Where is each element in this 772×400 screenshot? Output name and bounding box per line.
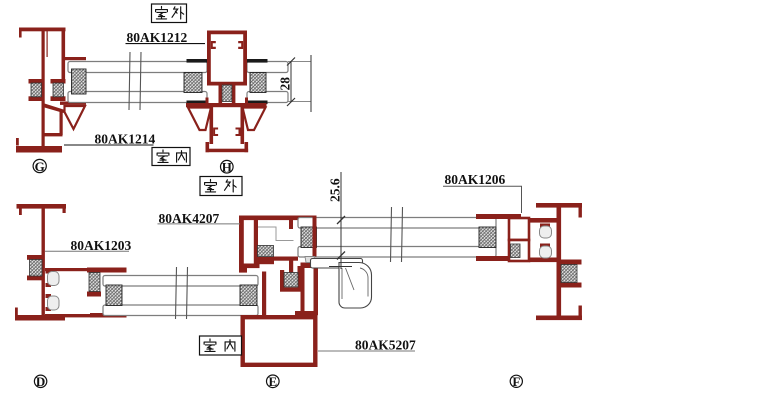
svg-text:80AK1214: 80AK1214 bbox=[95, 132, 156, 147]
svg-text:28: 28 bbox=[278, 77, 293, 91]
svg-text:D: D bbox=[36, 374, 45, 389]
svg-text:80AK1212: 80AK1212 bbox=[127, 30, 188, 45]
svg-text:E: E bbox=[268, 374, 277, 389]
svg-text:H: H bbox=[222, 160, 232, 175]
svg-text:F: F bbox=[512, 374, 520, 389]
svg-text:G: G bbox=[35, 159, 45, 174]
svg-text:80AK1206: 80AK1206 bbox=[445, 172, 506, 187]
svg-text:80AK5207: 80AK5207 bbox=[355, 338, 416, 353]
svg-text:80AK1203: 80AK1203 bbox=[71, 238, 132, 253]
svg-text:25.6: 25.6 bbox=[328, 178, 343, 202]
